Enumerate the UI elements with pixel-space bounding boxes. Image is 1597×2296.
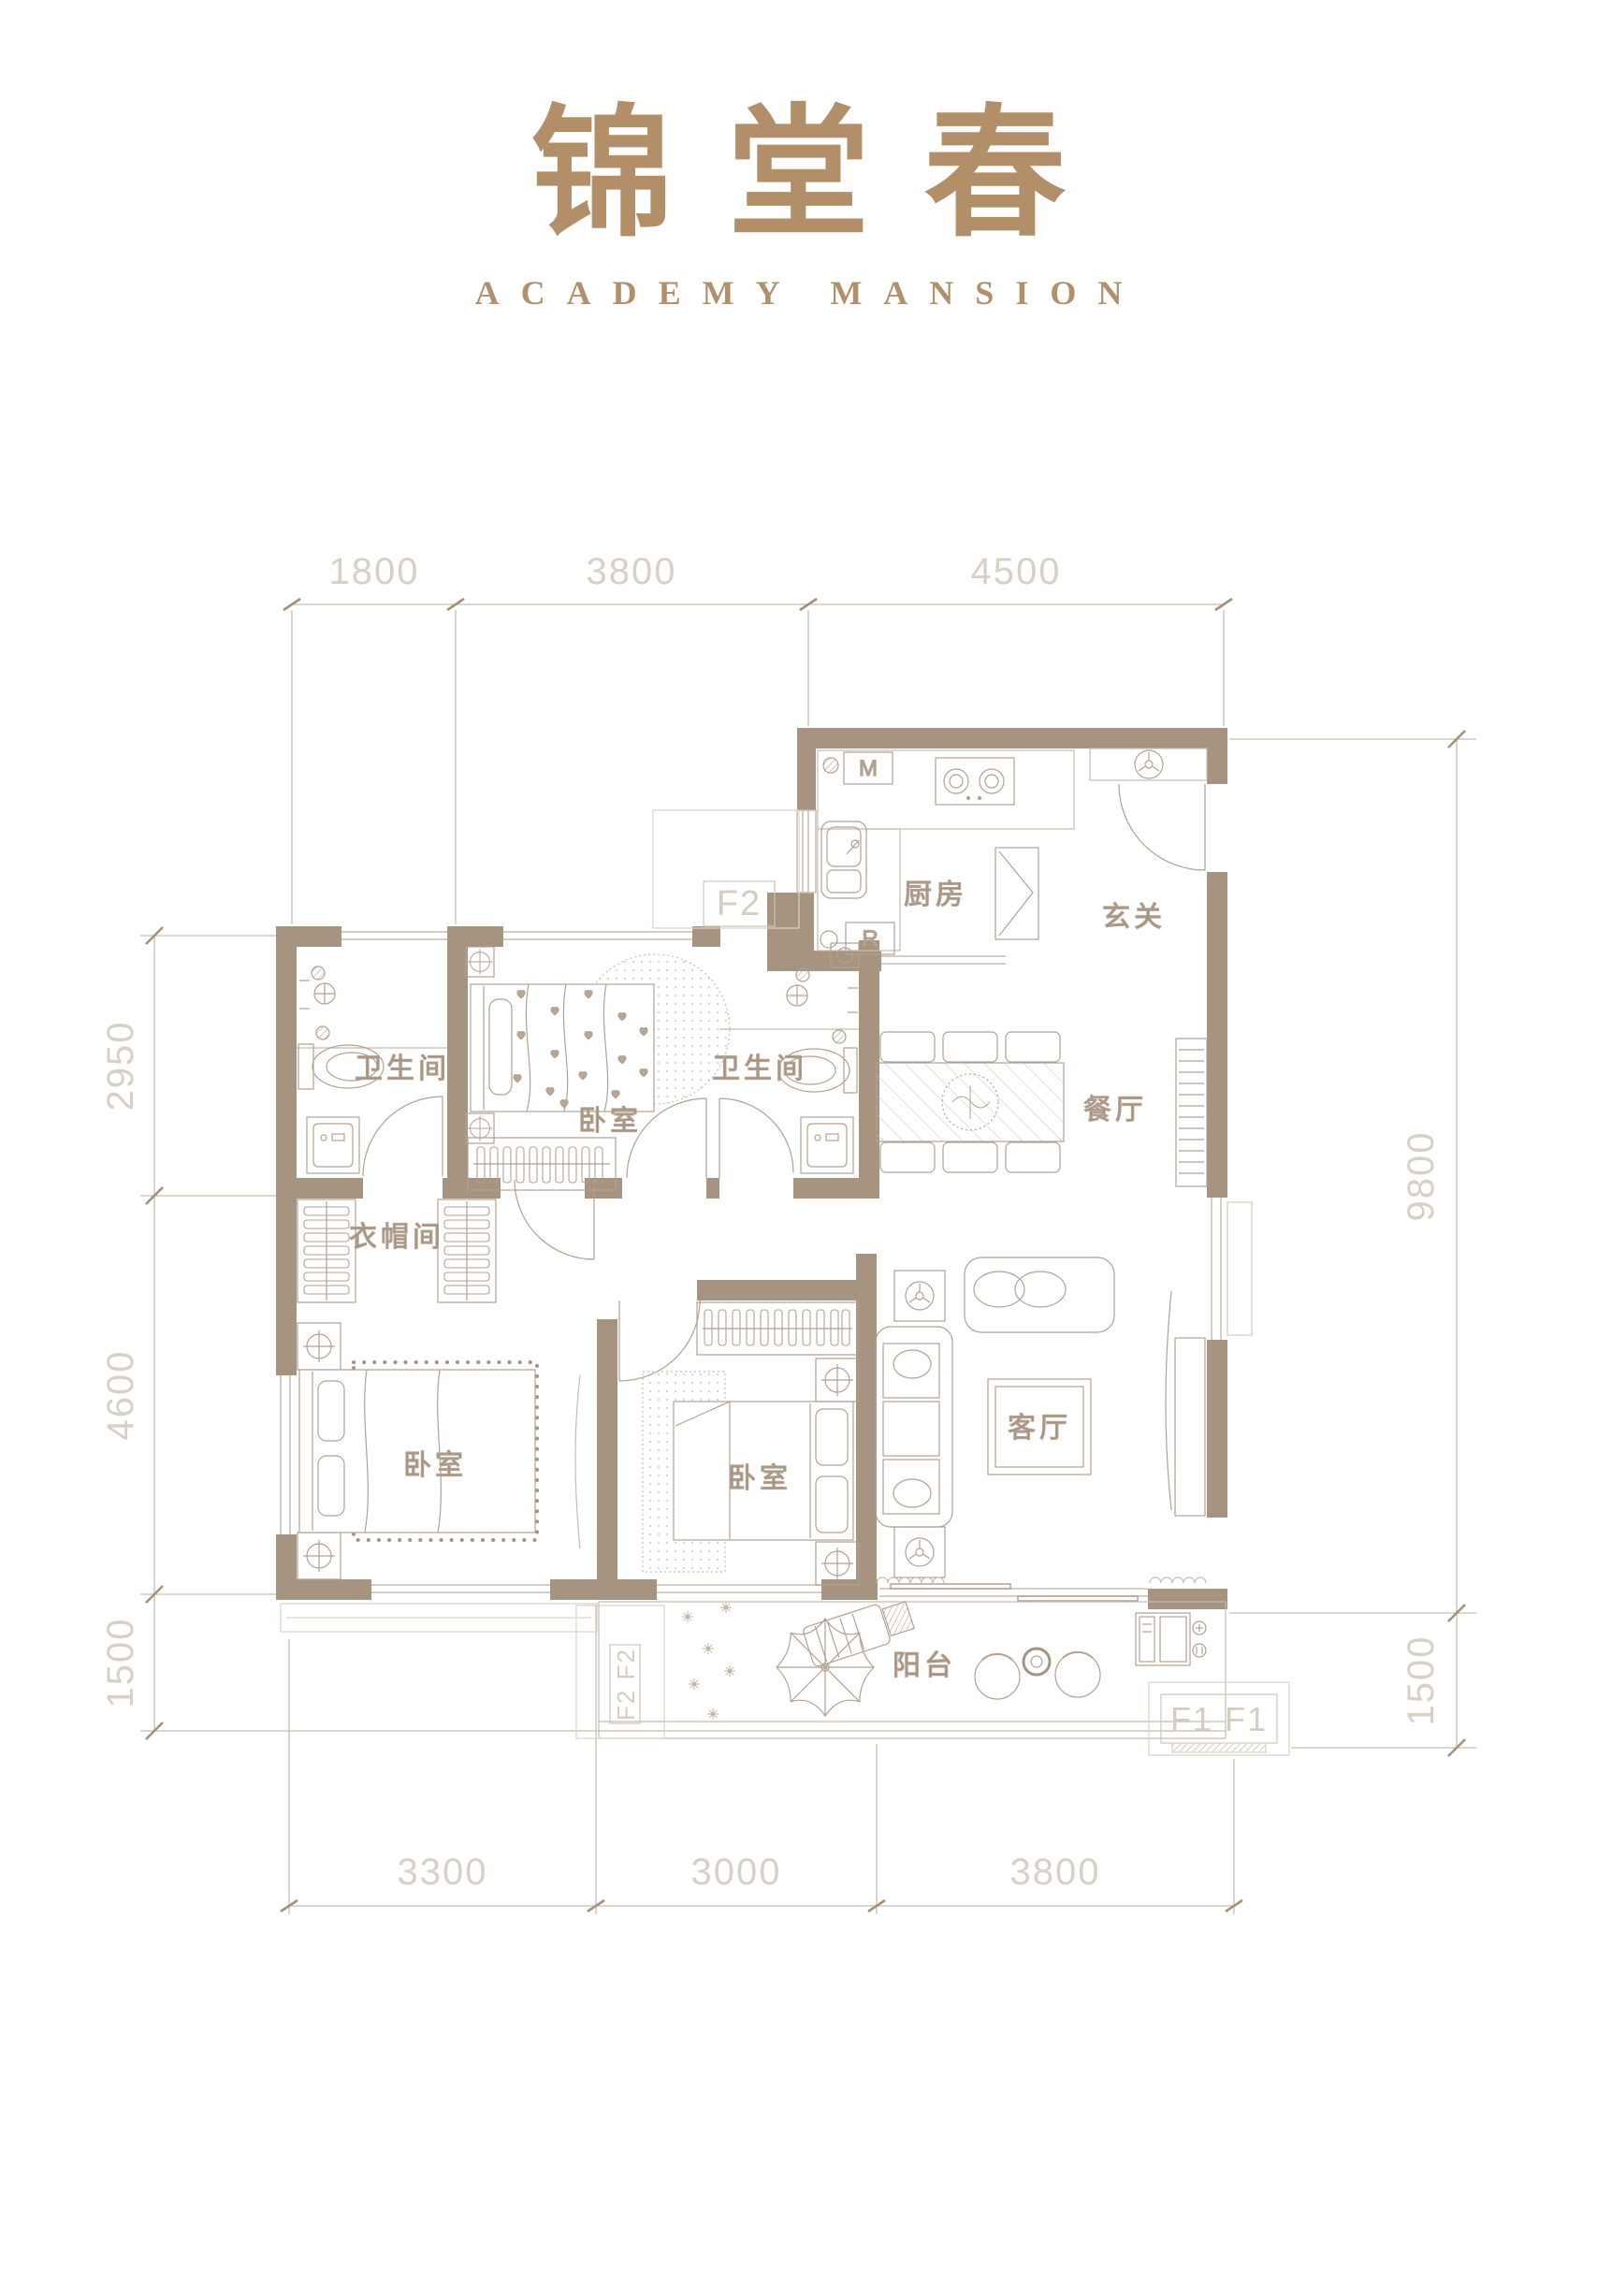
dim-left-3: 1500 xyxy=(100,1618,141,1708)
bed xyxy=(471,984,654,1112)
room-label-dining: 餐厅 xyxy=(1083,1095,1147,1126)
dim-bottom-3: 3800 xyxy=(1010,1852,1101,1893)
room-label-kitchen: 厨房 xyxy=(904,879,967,910)
dimension-labels: 1800 3800 4500 3300 3000 3800 2950 4600 … xyxy=(100,551,1442,1893)
room-dining: 餐厅 xyxy=(877,1032,1207,1186)
room-entry: 玄关 xyxy=(1090,748,1207,933)
ac-marker-balcony-right: F1 F1 xyxy=(1170,1700,1268,1738)
room-label-bath-left: 卫生间 xyxy=(355,1054,450,1084)
dim-top-3: 4500 xyxy=(971,551,1062,592)
washing-machine-icon xyxy=(801,1117,853,1173)
room-label-living: 客厅 xyxy=(1008,1413,1071,1444)
room-bedroom-top: 卧室 xyxy=(466,947,730,1190)
floorplan-page: 锦堂春 ACADEMY MANSION xyxy=(0,0,1597,2296)
dim-top-1: 1800 xyxy=(329,551,420,592)
room-bedroom-mid: 卧室 xyxy=(643,1302,859,1585)
dim-top-2: 3800 xyxy=(587,551,677,592)
dim-right-2: 1500 xyxy=(1401,1635,1442,1726)
dim-left-2: 4600 xyxy=(100,1350,141,1441)
room-bath-left: 卫生间 xyxy=(297,966,450,1173)
room-kitchen: M R 厨房 xyxy=(818,750,1074,954)
shower-icon xyxy=(787,968,858,1012)
tv-cabinet xyxy=(1166,1291,1205,1516)
room-label-entry: 玄关 xyxy=(1102,902,1166,933)
room-label-bedroom-mid: 卧室 xyxy=(728,1463,791,1494)
room-cloakroom: 衣帽间 xyxy=(298,1199,496,1302)
dim-bottom-1: 3300 xyxy=(398,1852,488,1893)
room-label-balcony: 阳台 xyxy=(893,1650,956,1681)
room-bedroom-left: 卧室 xyxy=(298,1323,580,1579)
water-heater xyxy=(1136,1613,1206,1665)
kitchen-meter-r-label: R xyxy=(862,926,878,952)
fridge-icon xyxy=(995,848,1038,939)
shower-icon xyxy=(299,966,335,1009)
dim-bottom-2: 3000 xyxy=(691,1852,782,1893)
stove-icon xyxy=(936,758,1014,805)
ac-marker-balcony-left: F2 F2 xyxy=(612,1648,640,1721)
floorplan-drawing: 1800 3800 4500 3300 3000 3800 2950 4600 … xyxy=(0,0,1597,2296)
kitchen-meter-m-label: M xyxy=(859,756,878,781)
room-balcony: 阳台 xyxy=(281,1595,1226,1738)
room-living: 客厅 xyxy=(876,1257,1206,1583)
room-label-bedroom-left: 卧室 xyxy=(403,1450,467,1481)
washing-machine-icon xyxy=(307,1117,359,1173)
room-label-bedroom-top: 卧室 xyxy=(578,1106,642,1137)
ac-marker-top: F2 xyxy=(717,884,762,923)
room-label-bath-right: 卫生间 xyxy=(712,1054,807,1084)
dim-right-1: 9800 xyxy=(1401,1131,1442,1222)
balcony-table-chairs xyxy=(975,1649,1100,1699)
ceiling-fan-icon xyxy=(1135,750,1163,778)
sink-icon xyxy=(821,821,866,898)
dim-left-1: 2950 xyxy=(100,1021,141,1112)
room-label-cloakroom: 衣帽间 xyxy=(349,1222,444,1253)
wardrobe xyxy=(697,1302,858,1355)
wine-cabinet xyxy=(1176,1039,1207,1186)
